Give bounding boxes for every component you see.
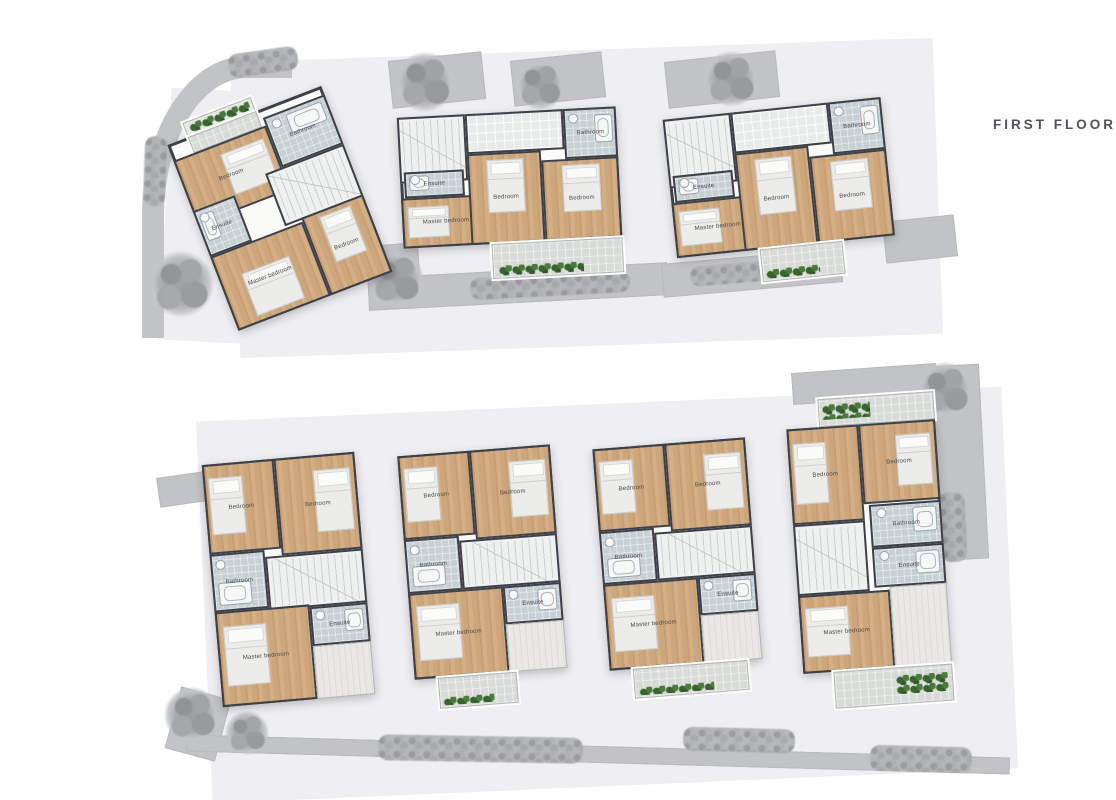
bed-pillow	[796, 445, 824, 461]
sink	[604, 537, 615, 548]
planter-plants	[443, 693, 495, 706]
bathtub	[218, 581, 252, 606]
house-plan-6: BedroomBedroomBathroomEnsuiteMaster bedr…	[592, 437, 764, 700]
room-stairs	[654, 525, 755, 580]
sink	[834, 106, 845, 117]
room-master: Master bedroom	[798, 590, 896, 674]
bed	[404, 467, 441, 523]
bed-pillow	[898, 435, 928, 449]
bed	[561, 164, 602, 213]
bed	[508, 459, 550, 518]
room-bedroom: Bedroom	[273, 452, 362, 556]
bed-pillow	[615, 598, 652, 613]
bed	[611, 594, 659, 652]
room-bedroom: Bedroom	[467, 150, 546, 245]
room-bath: Bathroom	[828, 97, 886, 154]
room-ensuite: Ensuite	[309, 602, 370, 646]
bathtub	[607, 556, 641, 579]
tree	[164, 687, 220, 743]
bathtub	[344, 608, 365, 632]
bed	[830, 157, 873, 211]
bathtub	[412, 564, 446, 587]
room-tile	[465, 109, 565, 154]
room-bedroom: Bedroom	[734, 146, 818, 251]
room-bedroom: Bedroom	[592, 444, 670, 533]
bed	[416, 603, 464, 661]
room-stairs	[793, 520, 869, 596]
bed-pillow	[247, 260, 291, 285]
room-bedroom: Bedroom	[858, 419, 941, 505]
room-closet	[701, 611, 763, 663]
room-bath: Bathroom	[563, 106, 618, 158]
room-master: Master bedroom	[603, 578, 704, 671]
bed	[703, 452, 745, 511]
room-bedroom: Bedroom	[469, 444, 557, 539]
sink	[215, 559, 226, 570]
bed-pillow	[420, 607, 457, 622]
room-bath: Bathroom	[599, 528, 658, 585]
room-bedroom: Bedroom	[397, 451, 475, 541]
room-closet	[313, 641, 376, 699]
house-plan-2: BathroomEnsuiteMaster bedroomBedroomBedr…	[397, 106, 624, 283]
room-closet	[506, 620, 568, 673]
hedge	[870, 745, 973, 774]
bed-pillow	[407, 470, 435, 484]
bed-pillow	[212, 479, 241, 494]
room-bath: Bathroom	[210, 550, 270, 613]
tree	[225, 711, 269, 755]
bed	[222, 623, 271, 687]
bed	[319, 206, 367, 263]
site-plan: FIRST FLOOR BedroomBathroomEnsuiteMaster…	[0, 0, 1116, 800]
bed-pillow	[412, 207, 446, 217]
bed	[408, 205, 450, 238]
planter-plants	[498, 261, 584, 275]
room-bath: Bathroom	[869, 499, 943, 547]
bathtub	[286, 102, 329, 134]
room-stairs	[265, 549, 367, 611]
house-plan-4: BedroomBedroomBathroomEnsuiteMaster bedr…	[202, 452, 376, 707]
room-stairs	[459, 533, 560, 589]
room-bedroom: Bedroom	[810, 148, 895, 243]
room-master: Master bedroom	[215, 605, 318, 708]
bed-pillow	[316, 471, 348, 488]
bed	[805, 605, 851, 657]
bed	[486, 158, 526, 213]
hedge	[378, 734, 583, 764]
bathtub	[594, 113, 613, 142]
bed-pillow	[758, 159, 790, 175]
bed	[241, 256, 305, 317]
room-balcony	[438, 672, 520, 709]
room-balcony	[491, 237, 624, 279]
bed	[208, 476, 246, 536]
bed-pillow	[227, 627, 264, 644]
planter-plants	[895, 672, 949, 695]
sink	[568, 114, 579, 125]
room-master: Master bedroom	[408, 586, 509, 680]
bed	[754, 156, 797, 216]
room-closet	[890, 583, 952, 667]
house-plan-7: BedroomBedroomBathroomEnsuiteMaster bedr…	[784, 391, 954, 711]
bed	[679, 208, 723, 247]
room-ensuite: Ensuite	[698, 573, 759, 615]
tree	[703, 51, 759, 107]
sink	[703, 581, 714, 592]
sink	[508, 589, 519, 600]
bed-pillow	[683, 211, 717, 223]
house-plan-3: BathroomEnsuiteMaster bedroomBedroomBedr…	[663, 97, 899, 291]
tree	[515, 60, 565, 110]
bathtub	[537, 587, 558, 610]
sink	[409, 545, 420, 556]
planter-plants	[822, 401, 871, 419]
room-bedroom: Bedroom	[786, 424, 864, 525]
bed-pillow	[512, 462, 544, 477]
tree	[395, 52, 455, 112]
bathtub	[915, 549, 940, 574]
room-ensuite: Ensuite	[503, 582, 564, 625]
bed	[793, 442, 830, 505]
room-bedroom: Bedroom	[542, 156, 623, 241]
sink	[876, 508, 887, 519]
hedge	[683, 727, 796, 754]
bed-pillow	[323, 209, 353, 229]
room-bedroom: Bedroom	[664, 437, 752, 531]
bathtub	[732, 579, 753, 602]
bed-pillow	[834, 160, 867, 175]
bed	[599, 459, 636, 514]
room-bedroom: Bedroom	[202, 459, 281, 555]
bed	[894, 432, 933, 485]
sink	[270, 117, 283, 130]
room-bath: Bathroom	[404, 536, 463, 594]
bed-pillow	[490, 161, 521, 175]
house-plan-5: BedroomBedroomBathroomEnsuiteMaster bedr…	[397, 444, 570, 710]
room-ensuite: Ensuite	[872, 543, 946, 588]
planter-plants	[766, 264, 820, 279]
bed-pillow	[602, 463, 630, 477]
bed-pillow	[226, 142, 265, 165]
room-ensuite: Ensuite	[404, 169, 464, 199]
sink	[315, 610, 326, 621]
bed-pillow	[707, 455, 739, 470]
bed	[312, 467, 355, 532]
bathtub	[859, 104, 880, 135]
floor-title: FIRST FLOOR	[993, 117, 1116, 132]
bed-pillow	[565, 167, 597, 180]
bathtub	[912, 506, 937, 532]
bed-pillow	[810, 608, 846, 622]
sink	[879, 551, 890, 562]
